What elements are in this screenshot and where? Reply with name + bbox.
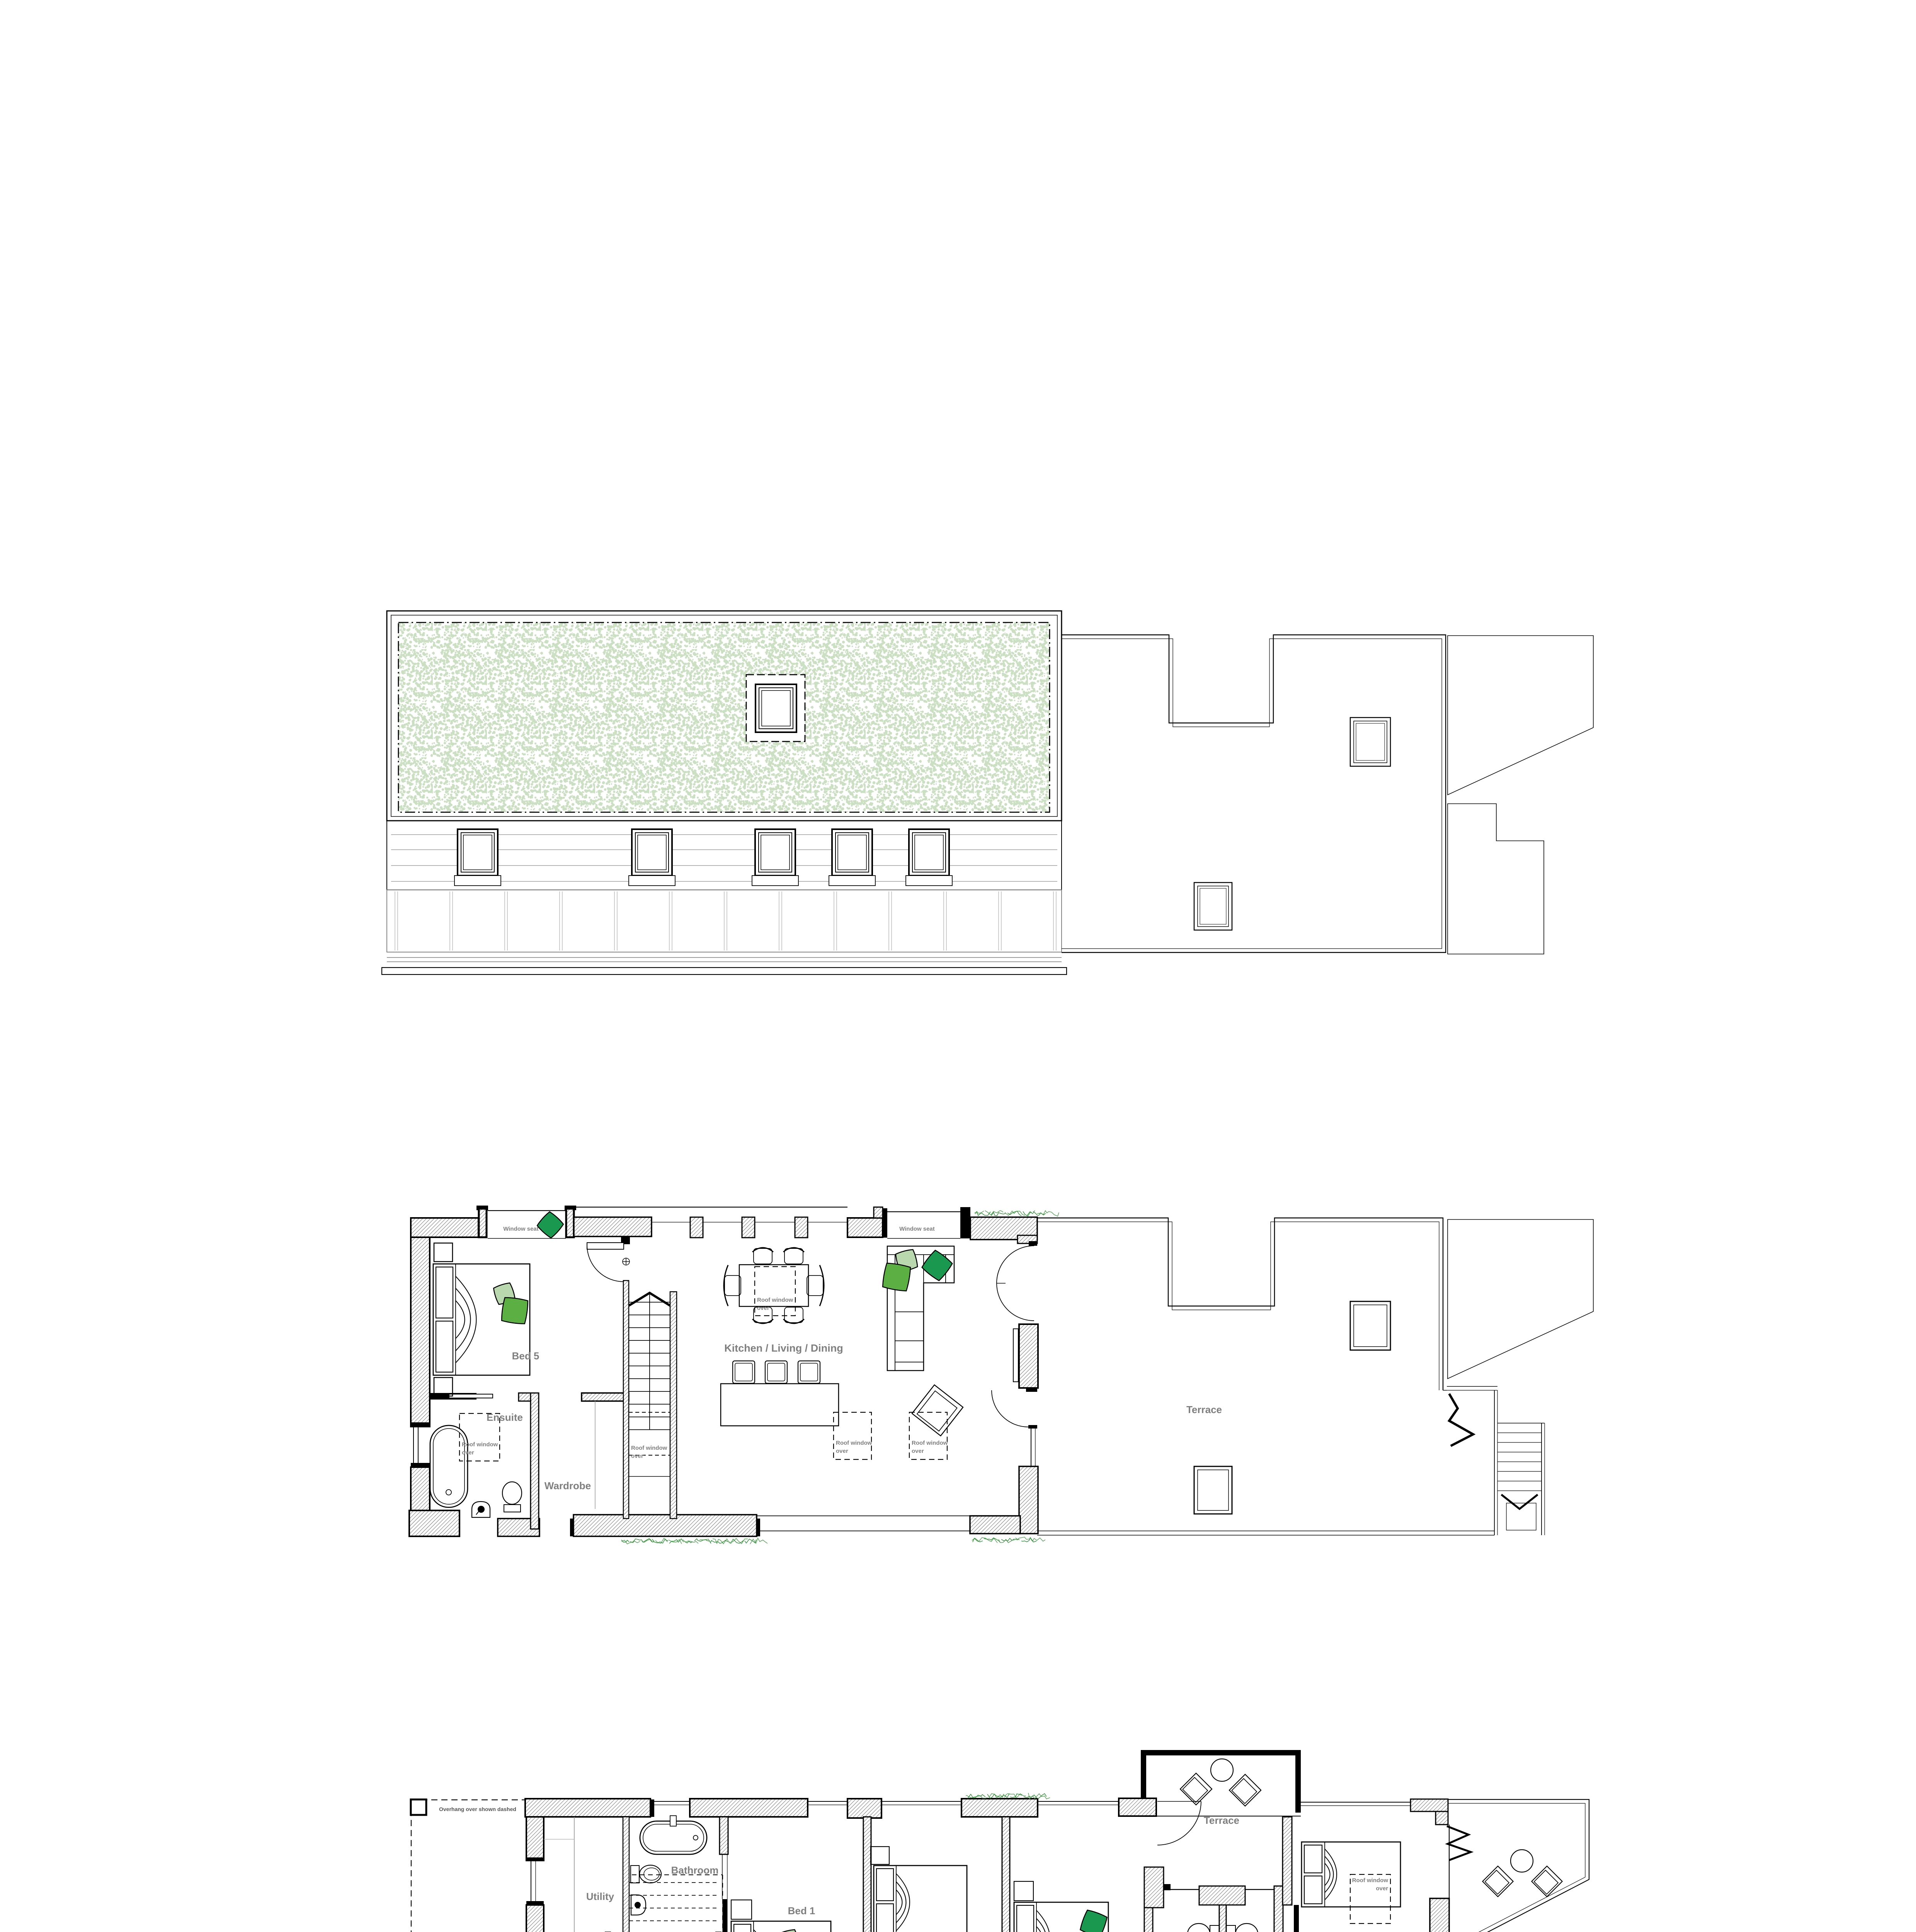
- svg-text:Roof window: Roof window: [462, 1441, 498, 1448]
- svg-text:Bathroom: Bathroom: [671, 1864, 719, 1876]
- svg-text:Terrace: Terrace: [1204, 1815, 1239, 1826]
- svg-text:Ensuite: Ensuite: [487, 1412, 523, 1423]
- svg-text:Roof window: Roof window: [912, 1440, 948, 1446]
- svg-text:Bed 5: Bed 5: [512, 1350, 539, 1362]
- svg-text:over: over: [757, 1305, 769, 1311]
- svg-text:Roof window: Roof window: [1352, 1877, 1389, 1884]
- svg-text:Kitchen / Living / Dining: Kitchen / Living / Dining: [724, 1342, 843, 1354]
- svg-text:over: over: [462, 1449, 474, 1456]
- svg-text:over: over: [912, 1448, 924, 1454]
- svg-text:over: over: [631, 1453, 643, 1459]
- svg-text:Roof window: Roof window: [631, 1445, 667, 1451]
- svg-text:Roof window: Roof window: [757, 1297, 793, 1303]
- svg-text:Utility: Utility: [586, 1891, 614, 1902]
- svg-text:Terrace: Terrace: [1186, 1404, 1222, 1415]
- svg-text:Bed 1: Bed 1: [788, 1905, 815, 1917]
- svg-text:Roof window: Roof window: [836, 1440, 872, 1446]
- svg-text:over: over: [836, 1448, 848, 1454]
- svg-text:over: over: [1376, 1885, 1388, 1892]
- svg-text:Window seat: Window seat: [503, 1226, 539, 1232]
- svg-text:Wardrobe: Wardrobe: [545, 1480, 591, 1492]
- svg-text:Window seat: Window seat: [899, 1226, 935, 1232]
- svg-text:Overhang over shown dashed: Overhang over shown dashed: [439, 1806, 516, 1812]
